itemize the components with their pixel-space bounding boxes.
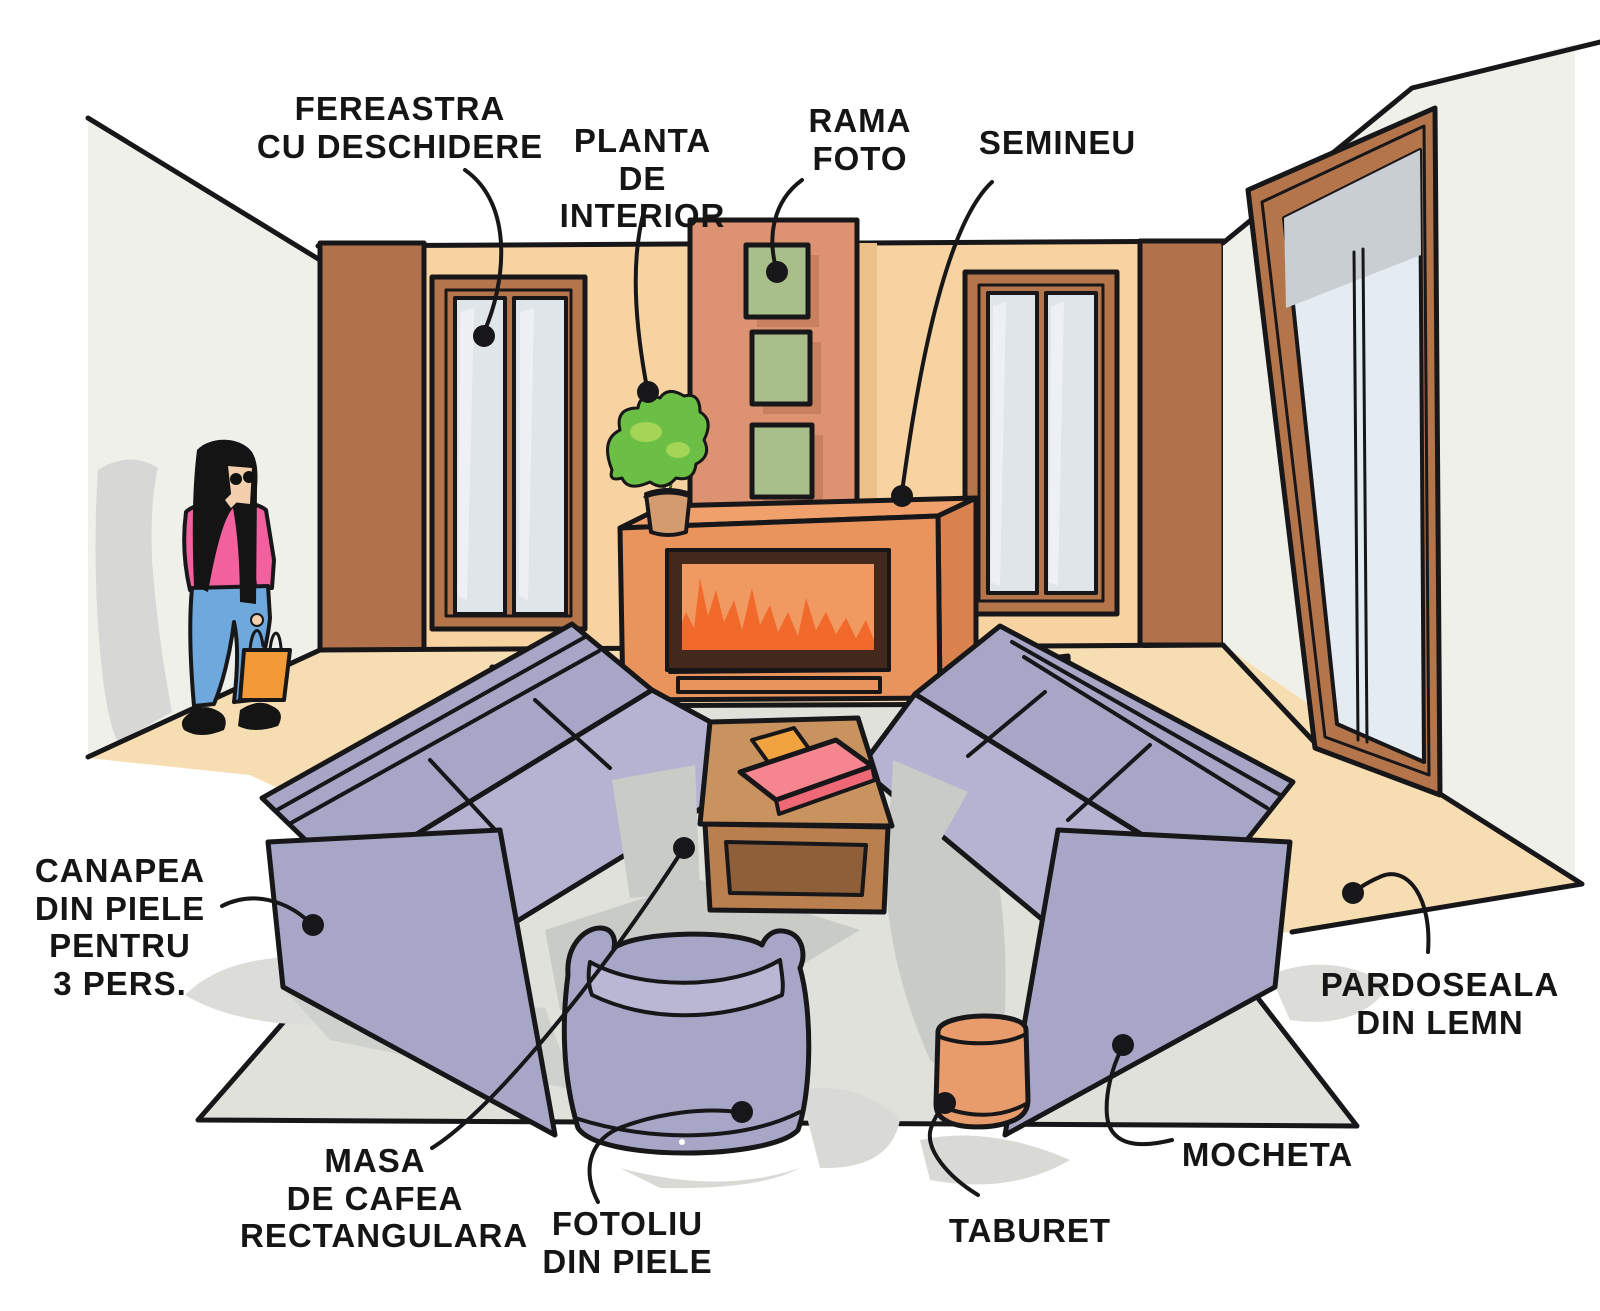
left-pillar <box>320 243 424 650</box>
right-pillar <box>1140 241 1224 645</box>
illustration-canvas: FEREASTRA CU DESCHIDERE PLANTA DE INTERI… <box>0 0 1600 1311</box>
label-mocheta: MOCHETA <box>1180 1136 1355 1174</box>
label-taburet: TABURET <box>940 1212 1120 1250</box>
label-rama: RAMA FOTO <box>795 102 925 177</box>
photo-frame-3 <box>752 425 823 507</box>
living-room-illustration <box>0 0 1600 1311</box>
label-fotoliu: FOTOLIU DIN PIELE <box>535 1205 720 1280</box>
label-fereastra: FEREASTRA CU DESCHIDERE <box>250 90 550 165</box>
photo-frame-2 <box>752 332 821 414</box>
armchair-back <box>564 928 808 1153</box>
left-window <box>432 277 585 629</box>
label-pardoseala: PARDOSEALA DIN LEMN <box>1300 966 1580 1041</box>
shopping-bag <box>240 650 290 700</box>
plant-pot <box>646 490 690 535</box>
label-planta: PLANTA DE INTERIOR <box>540 122 745 235</box>
right-window <box>965 272 1117 614</box>
label-canapea: CANAPEA DIN PIELE PENTRU 3 PERS. <box>20 852 220 1002</box>
photo-frame-1 <box>746 245 819 327</box>
label-semineu: SEMINEU <box>975 124 1140 162</box>
sunglasses <box>230 473 242 485</box>
label-masa: MASA DE CAFEA RECTANGULARA <box>240 1142 510 1255</box>
